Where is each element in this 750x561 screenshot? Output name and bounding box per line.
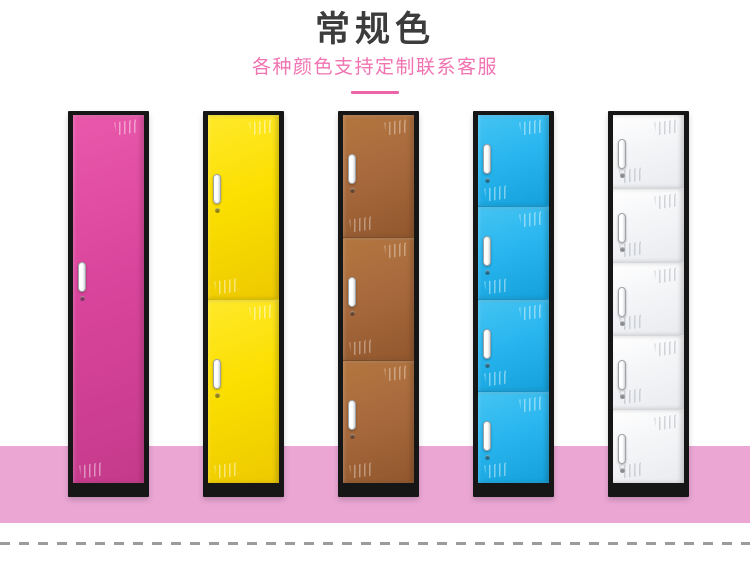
shine-mark [519, 304, 543, 320]
locker-brown-3-door-door-3 [343, 360, 414, 483]
shine-mark [349, 340, 373, 356]
shine-mark [484, 186, 508, 202]
shine-mark [249, 304, 273, 320]
shine-mark [654, 120, 678, 136]
keyhole [80, 296, 85, 301]
shine-mark [654, 267, 678, 283]
keyhole [215, 208, 220, 213]
locker-brown-3-door-door-1 [343, 115, 414, 237]
shine-mark [654, 341, 678, 357]
shine-mark [619, 241, 643, 257]
door-handle [213, 359, 221, 389]
shine-mark [484, 370, 508, 386]
locker-blue-4-door [473, 111, 554, 497]
locker-white-5-door-door-2 [613, 188, 684, 262]
locker-blue-4-door-door-2 [478, 206, 549, 298]
locker-blue-4-door-door-3 [478, 299, 549, 391]
locker-brown-3-door [338, 111, 419, 497]
door-stack [343, 115, 414, 483]
locker-showcase [0, 0, 750, 561]
door-handle [618, 213, 626, 243]
shine-mark [619, 389, 643, 405]
door-handle [483, 144, 491, 174]
door-handle [348, 400, 356, 430]
door-stack [73, 115, 144, 483]
keyhole [215, 393, 220, 398]
shine-mark [384, 120, 408, 136]
door-handle [213, 174, 221, 204]
locker-white-5-door-door-5 [613, 409, 684, 483]
shine-mark [249, 120, 273, 136]
locker-blue-4-door-door-4 [478, 391, 549, 483]
locker-yellow-2-door-door-1 [208, 115, 279, 299]
product-color-banner: 常规色 各种颜色支持定制联系客服 [0, 0, 750, 561]
keyhole [350, 311, 355, 316]
shine-mark [214, 278, 238, 294]
door-handle [483, 421, 491, 451]
keyhole [350, 188, 355, 193]
keyhole [485, 270, 490, 275]
locker-blue-4-door-door-1 [478, 115, 549, 206]
locker-white-5-door-door-3 [613, 262, 684, 336]
shine-mark [484, 463, 508, 479]
shine-mark [484, 278, 508, 294]
shine-mark [519, 212, 543, 228]
locker-brown-3-door-door-2 [343, 237, 414, 360]
door-handle [618, 360, 626, 390]
shine-mark [384, 366, 408, 382]
shine-mark [79, 463, 103, 479]
locker-yellow-2-door [203, 111, 284, 497]
shine-mark [654, 415, 678, 431]
door-handle [348, 154, 356, 184]
door-stack [478, 115, 549, 483]
shine-mark [619, 315, 643, 331]
shine-mark [349, 463, 373, 479]
shine-mark [384, 243, 408, 259]
door-handle [483, 329, 491, 359]
shine-mark [114, 120, 138, 136]
door-handle [348, 277, 356, 307]
locker-white-5-door-door-1 [613, 115, 684, 188]
locker-yellow-2-door-door-2 [208, 299, 279, 484]
keyhole [485, 455, 490, 460]
bottom-dashed-divider [0, 542, 750, 545]
door-handle [618, 434, 626, 464]
keyhole [350, 434, 355, 439]
door-handle [618, 287, 626, 317]
door-stack [208, 115, 279, 483]
shine-mark [619, 463, 643, 479]
shine-mark [619, 167, 643, 183]
locker-white-5-door-door-4 [613, 335, 684, 409]
door-stack [613, 115, 684, 483]
shine-mark [214, 463, 238, 479]
door-handle [618, 139, 626, 169]
keyhole [485, 363, 490, 368]
door-handle [78, 262, 86, 292]
locker-pink-1-door-door-1 [73, 115, 144, 483]
locker-white-5-door [608, 111, 689, 497]
locker-pink-1-door [68, 111, 149, 497]
door-handle [483, 236, 491, 266]
shine-mark [519, 120, 543, 136]
shine-mark [519, 396, 543, 412]
shine-mark [654, 193, 678, 209]
shine-mark [349, 217, 373, 233]
keyhole [485, 178, 490, 183]
